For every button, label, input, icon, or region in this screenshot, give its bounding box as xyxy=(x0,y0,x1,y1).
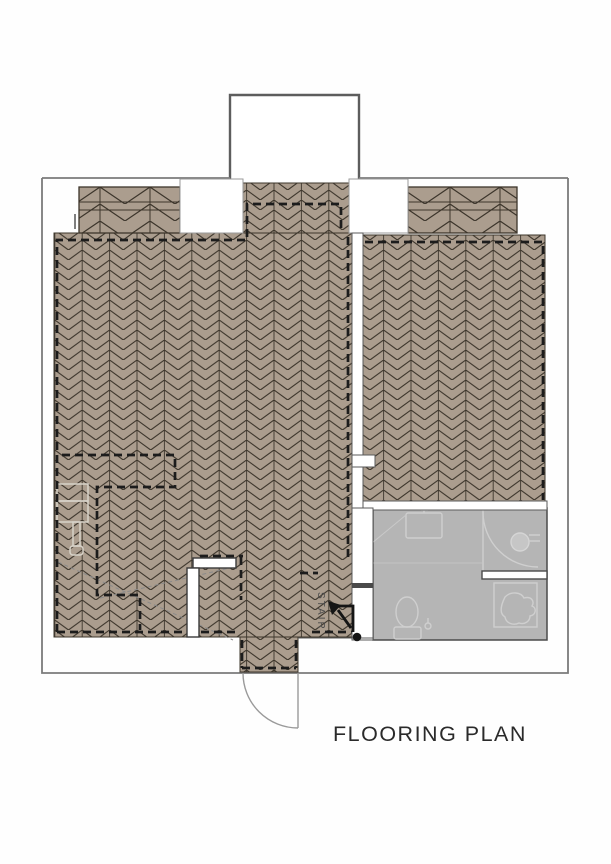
flooring-plan-page: STAIR FLOORING PLAN xyxy=(0,0,611,864)
wall-bathroom-top xyxy=(363,501,547,510)
pocket-door-wall xyxy=(187,568,199,637)
wall-bathroom-left xyxy=(352,508,373,640)
bay-window-outline xyxy=(230,95,359,181)
wall-nib xyxy=(352,455,375,467)
stair-label: STAIR xyxy=(315,592,326,631)
top-opening-left xyxy=(180,179,243,233)
pocket-door-rail xyxy=(193,558,236,568)
floor-main-area xyxy=(54,233,352,637)
bathroom-door-jamb xyxy=(352,583,373,588)
floor-center-strip xyxy=(243,183,352,233)
shower-partition xyxy=(482,571,547,579)
top-opening-right xyxy=(349,179,408,233)
flooring-plan-drawing: STAIR FLOORING PLAN xyxy=(0,0,611,864)
stair-arrow-dot xyxy=(353,633,362,642)
floor-right-area xyxy=(363,235,545,503)
drawing-title: FLOORING PLAN xyxy=(333,722,527,746)
wardrobe-right xyxy=(408,187,517,233)
wardrobe-left xyxy=(79,187,180,233)
